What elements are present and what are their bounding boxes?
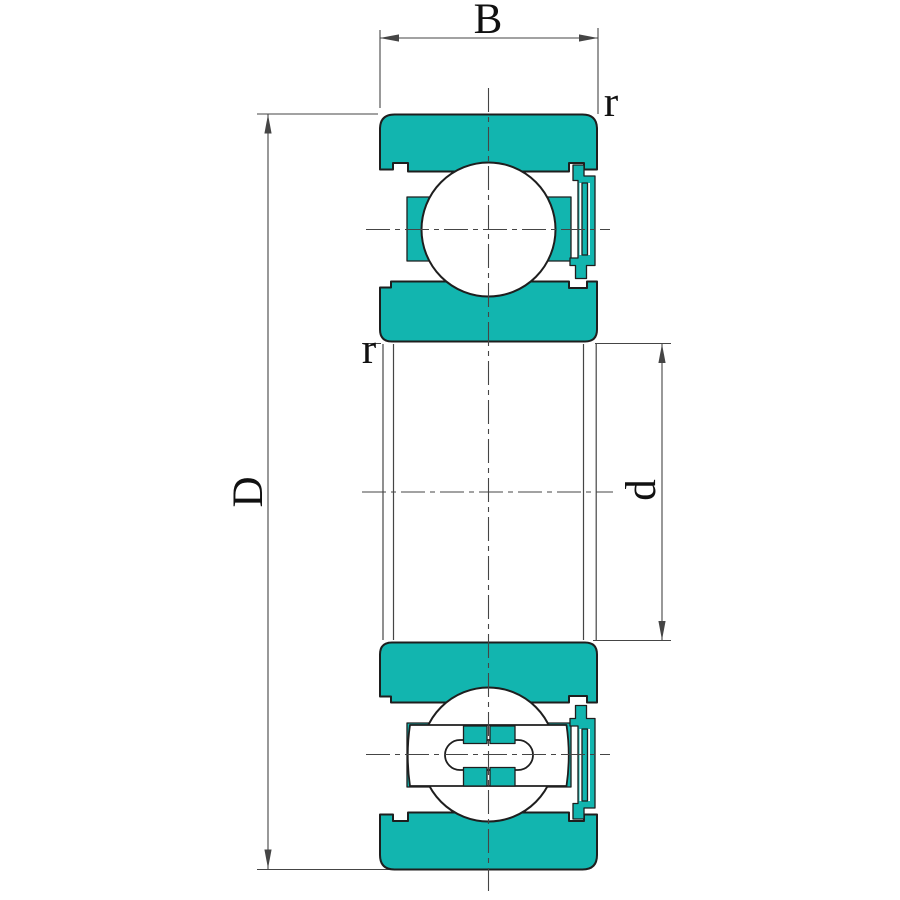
d-outer-arrow-bottom — [264, 850, 271, 869]
label-outer-diameter-D: D — [225, 476, 272, 507]
label-outer-corner-radius-r: r — [604, 79, 618, 126]
label-bore-diameter-d: d — [618, 479, 665, 501]
d-outer-arrow-top — [264, 115, 271, 134]
bearing-drawing-canvas: B D d r r — [0, 0, 900, 900]
cage-pocket-top-left — [464, 726, 488, 744]
d-bore-arrow-top — [658, 344, 665, 363]
d-bore-arrow-bottom — [658, 621, 665, 640]
b-arrow-right — [579, 34, 598, 41]
cage-pocket-bottom-right — [490, 768, 515, 787]
bearing-cross-section-drawing: B D d r r — [0, 0, 900, 900]
cage-pocket-top-right — [490, 726, 515, 744]
shield-plate — [582, 183, 588, 255]
cage-pocket-bottom-left — [464, 768, 488, 787]
b-arrow-left — [380, 34, 399, 41]
label-inner-corner-radius-r: r — [362, 326, 376, 373]
label-width-B: B — [474, 0, 503, 43]
